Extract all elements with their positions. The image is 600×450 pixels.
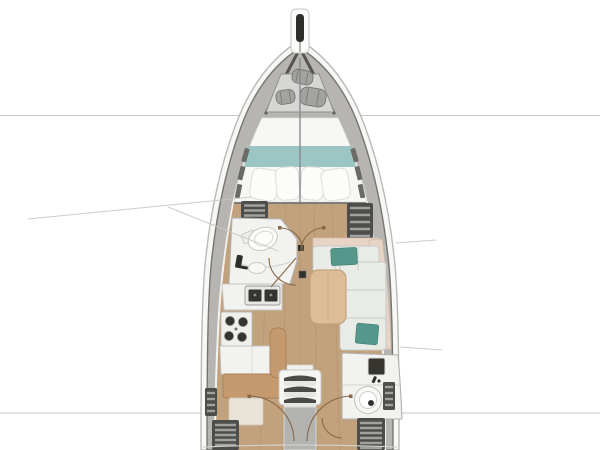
stair-treads bbox=[284, 376, 316, 408]
teal-accent-pillow-aft bbox=[355, 323, 379, 345]
stove bbox=[221, 312, 252, 346]
forward-head bbox=[229, 218, 297, 284]
port-fwd-slat-locker bbox=[241, 201, 268, 219]
stbd-tick-fwd bbox=[396, 240, 436, 243]
stbd-side-vent-strip bbox=[383, 382, 395, 410]
companionway bbox=[279, 365, 321, 450]
dining-table bbox=[310, 270, 346, 324]
floor-plan-canvas bbox=[0, 0, 600, 450]
vanity-sink bbox=[249, 263, 266, 274]
round-washbasin bbox=[355, 387, 382, 414]
port-side-vent-strip bbox=[205, 388, 217, 416]
mast-post bbox=[299, 271, 306, 278]
bowsprit-anchor-roller bbox=[291, 9, 309, 53]
aft-head-sink bbox=[368, 358, 385, 375]
yacht-floor-plan bbox=[0, 0, 600, 450]
teal-accent-pillow-fwd bbox=[331, 247, 358, 265]
stbd-tick-aft bbox=[400, 347, 442, 350]
engine-compartment-panel bbox=[284, 407, 316, 450]
